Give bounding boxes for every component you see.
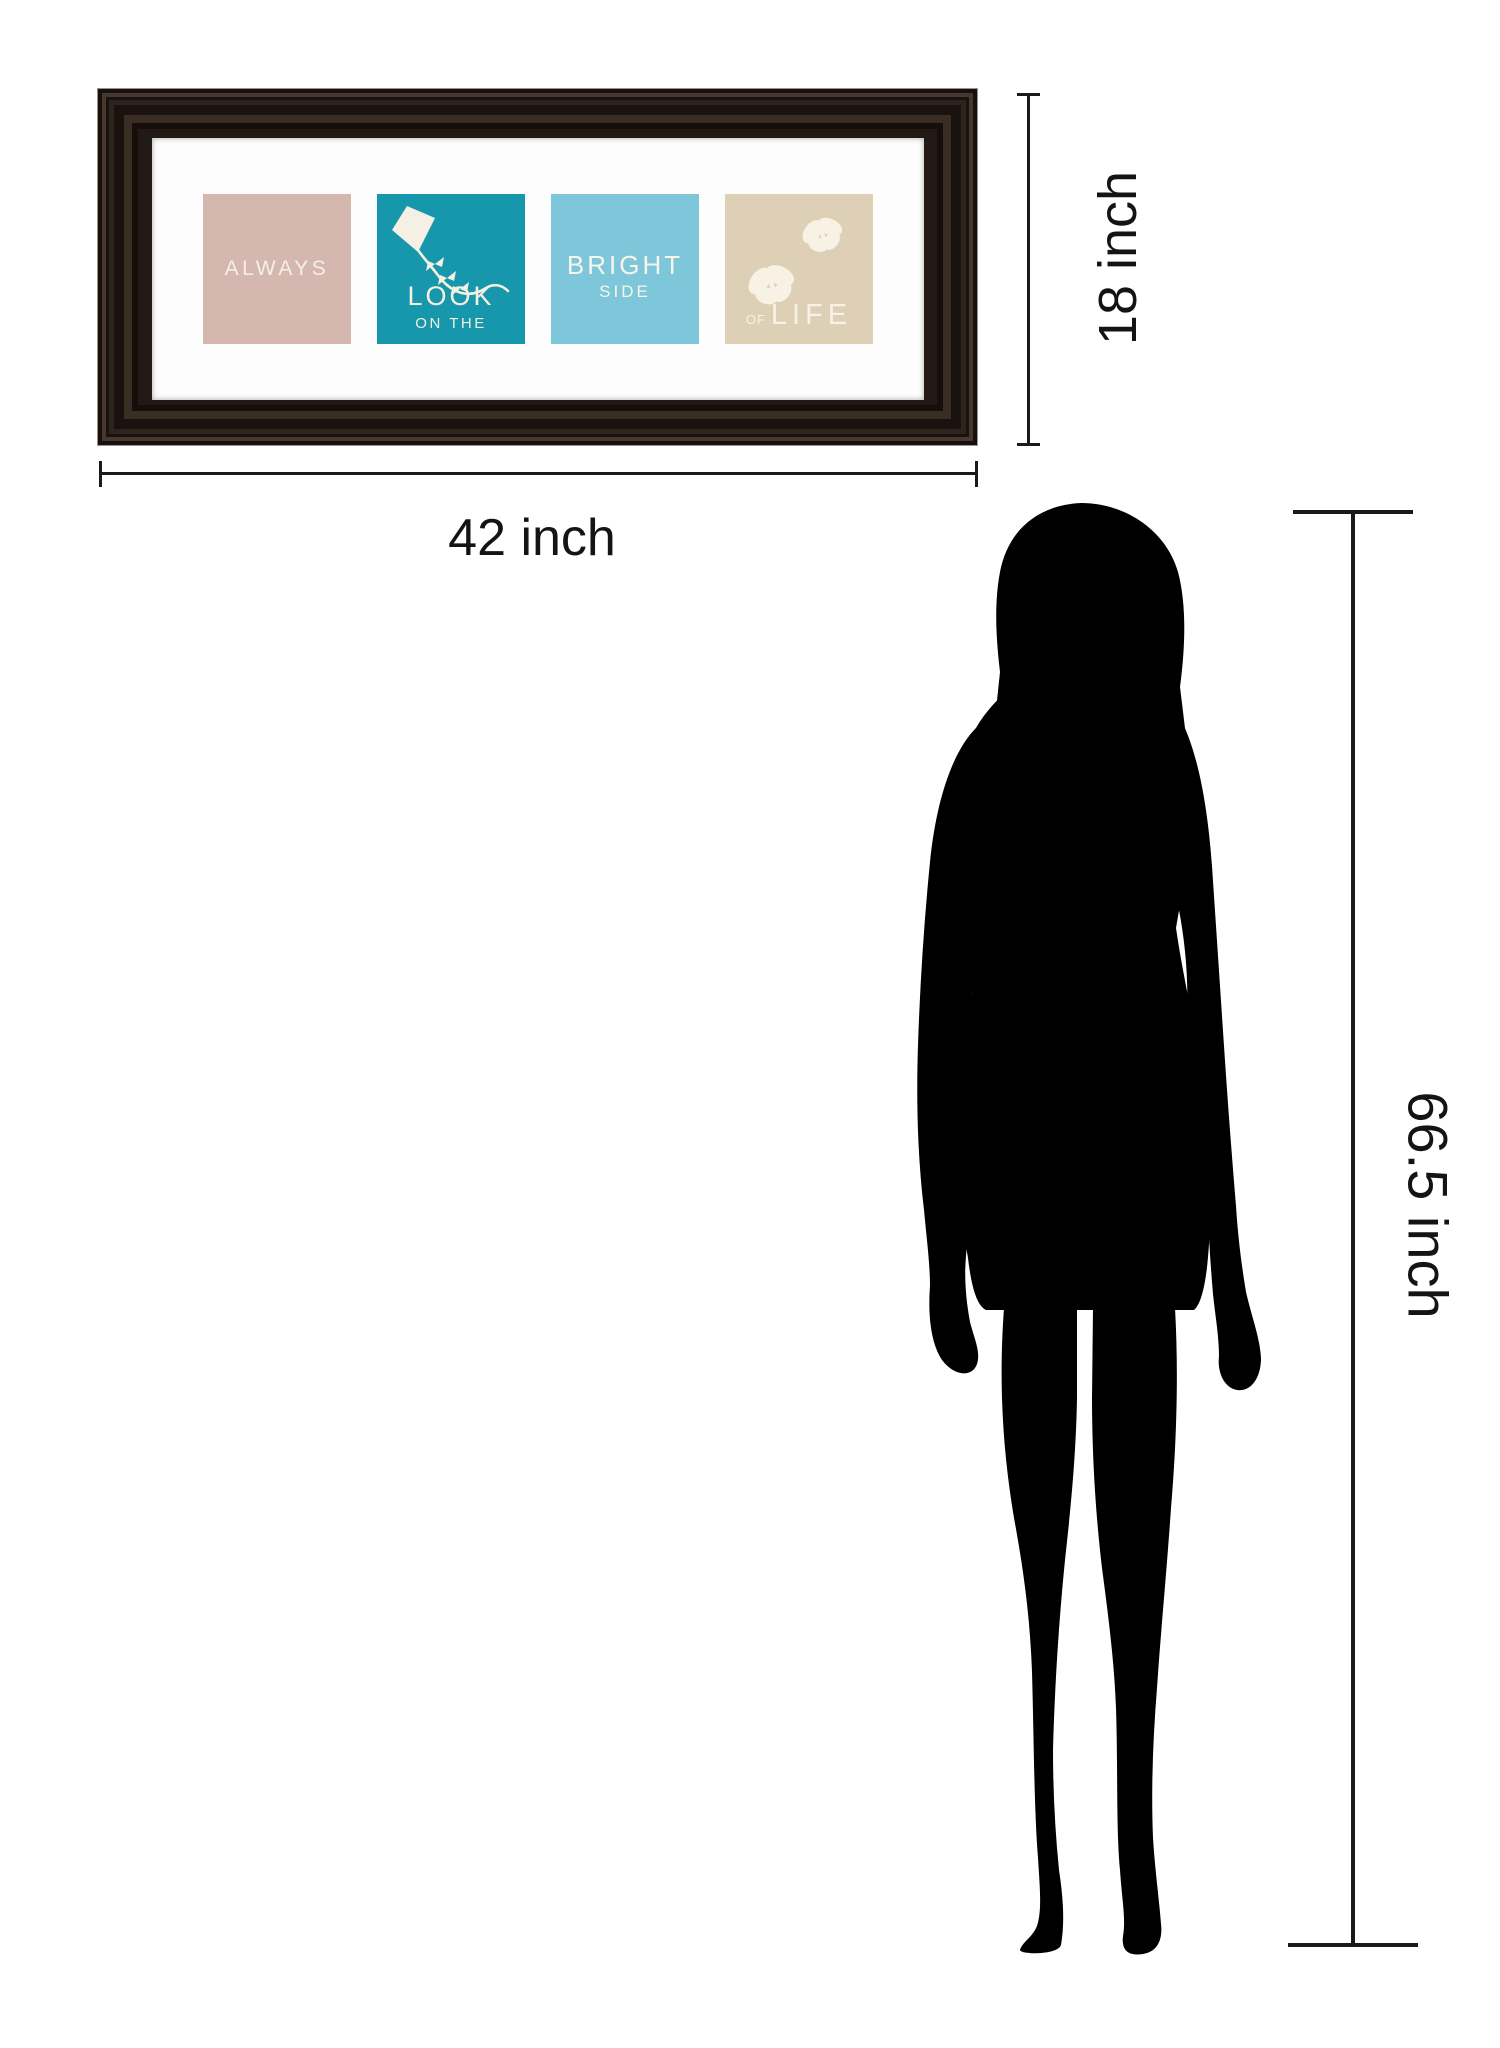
panel-bright-side: BRIGHT SIDE: [551, 194, 699, 344]
panel-look-text: LOOK: [377, 281, 525, 312]
frame-mat: ALWAYS LOOK ON THE BRIGHT SIDE: [152, 138, 924, 400]
panel-life-text: LIFE: [771, 299, 852, 332]
woman-silhouette: [880, 500, 1300, 1955]
panel-bright-text: BRIGHT: [567, 249, 683, 282]
width-dimension-cap-right: [975, 461, 978, 487]
height-dimension-cap-bottom: [1017, 443, 1040, 446]
panel-of-life: OF LIFE: [725, 194, 873, 344]
person-dimension-cap-top: [1293, 510, 1413, 514]
panel-look-on-the: LOOK ON THE: [377, 194, 525, 344]
panel-onthe-text: ON THE: [377, 315, 525, 332]
width-dimension-line: [99, 472, 978, 475]
panel-always: ALWAYS: [203, 194, 351, 344]
panel-of-text: OF: [746, 312, 766, 327]
height-dimension-cap-top: [1017, 93, 1040, 96]
picture-frame: ALWAYS LOOK ON THE BRIGHT SIDE: [97, 88, 978, 446]
person-dimension-line: [1351, 510, 1355, 1947]
width-dimension-cap-left: [99, 461, 102, 487]
panel-always-text: ALWAYS: [225, 257, 330, 281]
panel-side-text: SIDE: [567, 281, 683, 303]
person-dimension-label: 66.5 inch: [1396, 1091, 1461, 1318]
height-dimension-label: 18 inch: [1087, 171, 1149, 345]
product-dimension-diagram: ALWAYS LOOK ON THE BRIGHT SIDE: [0, 0, 1500, 2048]
height-dimension-line: [1027, 93, 1030, 446]
person-dimension-cap-bottom: [1288, 1943, 1418, 1947]
width-dimension-label: 42 inch: [448, 508, 616, 568]
